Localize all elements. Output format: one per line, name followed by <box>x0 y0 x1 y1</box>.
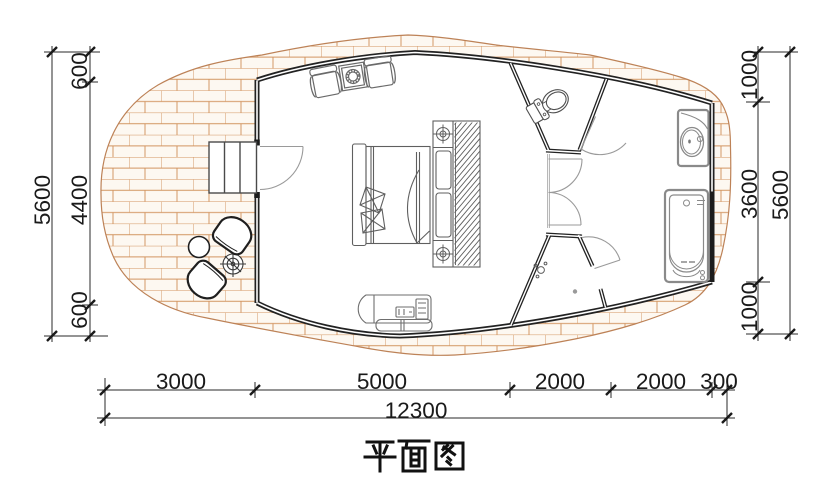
svg-text:3600: 3600 <box>737 169 762 219</box>
svg-text:1000: 1000 <box>737 50 762 100</box>
svg-text:300: 300 <box>700 369 738 394</box>
svg-text:12300: 12300 <box>385 398 448 423</box>
svg-text:600: 600 <box>67 291 92 329</box>
svg-text:5000: 5000 <box>357 369 407 394</box>
svg-text:2000: 2000 <box>636 369 686 394</box>
svg-text:5600: 5600 <box>30 175 55 225</box>
svg-text:5600: 5600 <box>768 170 793 220</box>
svg-text:4400: 4400 <box>67 175 92 225</box>
svg-text:1000: 1000 <box>737 282 762 332</box>
svg-text:3000: 3000 <box>156 369 206 394</box>
svg-text:600: 600 <box>67 52 92 90</box>
svg-text:2000: 2000 <box>535 369 585 394</box>
